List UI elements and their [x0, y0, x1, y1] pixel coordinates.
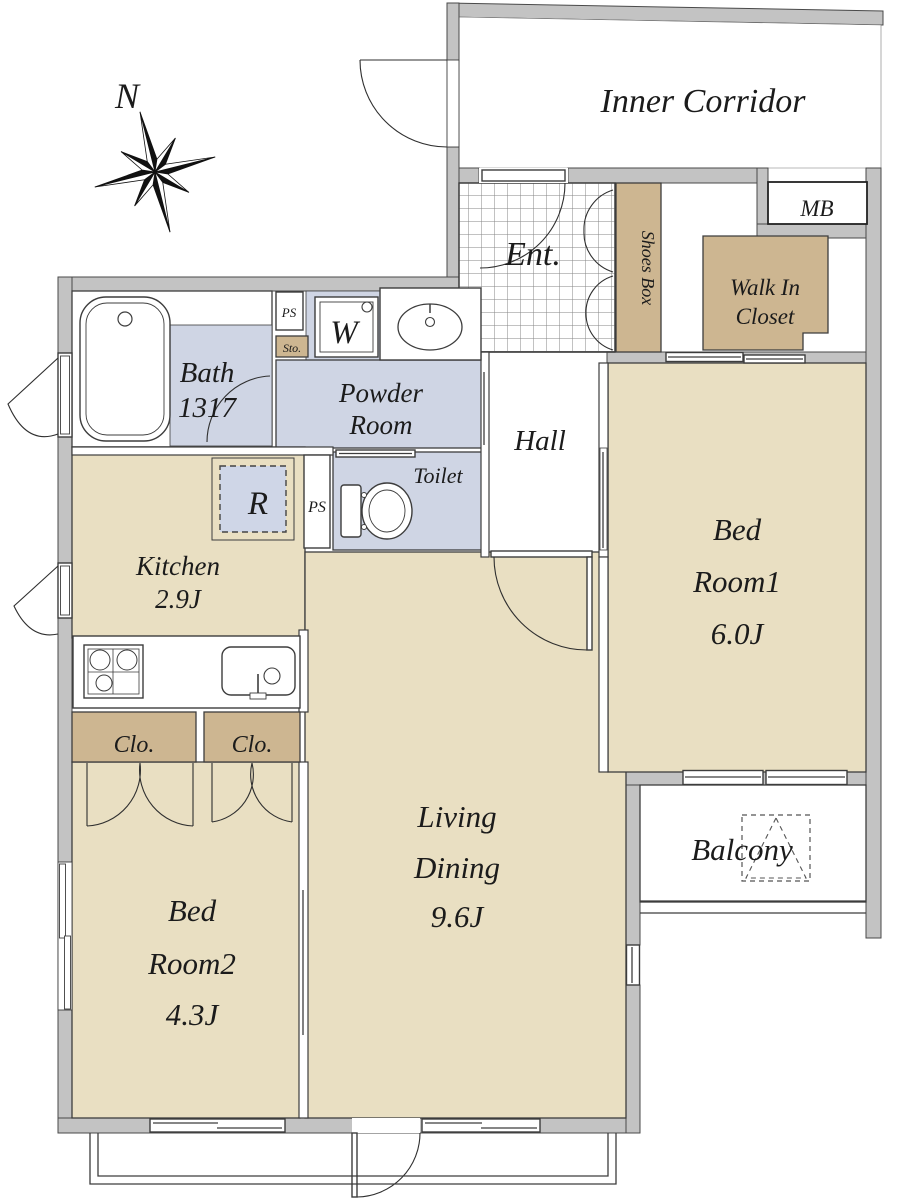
closet-left-label: Clo. [114, 732, 155, 758]
vanity-drain [426, 318, 435, 327]
living-south-door-leaf [352, 1133, 357, 1197]
kitchen-label-2: 2.9J [155, 584, 203, 614]
living-bedroom1-wall [599, 557, 608, 772]
bath-label-2: 1317 [178, 392, 238, 424]
ps-lower-label: PS [307, 499, 326, 516]
compass-rose-icon [80, 97, 230, 247]
compass-north-label: N [114, 76, 141, 116]
powder-label-1: Powder [338, 378, 423, 408]
living-east-window [627, 945, 640, 985]
entrance-label: Ent. [504, 236, 561, 273]
powder-hall-wall [481, 352, 489, 557]
bedroom2-label-1: Bed [168, 893, 217, 928]
wic-label-1: Walk In [730, 275, 800, 300]
ps-upper-label: PS [281, 305, 297, 320]
bath-label-1: Bath [180, 357, 235, 389]
living-label-1: Living [416, 799, 496, 834]
living-right-wall-lower [626, 985, 640, 1133]
bedroom2-west-window-sash1 [60, 864, 66, 938]
hall-living-door-leaf [587, 557, 592, 650]
bedroom2-label-3: 4.3J [166, 997, 220, 1032]
floor-plan-canvas: N Inner Corridor Ent. MB Shoes Box Walk … [0, 0, 901, 1200]
washer-label: W [330, 315, 360, 351]
stove-burner-2 [117, 650, 137, 670]
toilet-tank [341, 485, 361, 537]
left-window-1-casement [8, 358, 58, 437]
refrigerator-label: R [247, 486, 268, 522]
bedroom2-floor [72, 762, 300, 1118]
bedroom2-west-window-sash2 [65, 936, 71, 1009]
corridor-door-swing [360, 60, 447, 147]
living-label-2: Dining [413, 850, 500, 885]
bedroom1-label-3: 6.0J [711, 616, 765, 651]
closet-right-label: Clo. [232, 732, 273, 758]
living-south-door-opening [352, 1118, 420, 1133]
washer-drain [362, 302, 372, 312]
kitchen-label-1: Kitchen [135, 551, 220, 581]
bath-kitchen-wall [72, 447, 333, 455]
corridor-door-frame [447, 60, 459, 147]
stove-burner-1 [90, 650, 110, 670]
bedroom2-label-2: Room2 [147, 946, 236, 981]
bedroom1-label-2: Room1 [692, 564, 781, 599]
corridor-bottom-wall-b [568, 168, 757, 183]
wic-label-2: Closet [736, 304, 795, 329]
living-south-window [422, 1119, 540, 1132]
bedroom2-south-window [150, 1119, 285, 1132]
floor-plan: N Inner Corridor Ent. MB Shoes Box Walk … [0, 0, 901, 1200]
toilet-label: Toilet [413, 463, 463, 488]
meter-box-label: MB [799, 196, 833, 221]
balcony-label: Balcony [691, 832, 793, 867]
storage-label: Sto. [283, 341, 301, 355]
kitchen-faucet-base [250, 693, 266, 699]
kitchen-sink-drain [264, 668, 280, 684]
right-wall [866, 168, 881, 938]
corridor-label: Inner Corridor [600, 83, 807, 120]
living-south-door-swing [357, 1133, 420, 1197]
toilet-knob-bottom [362, 525, 367, 530]
balcony-left-wall [626, 772, 640, 945]
hall-living-door-frame [491, 551, 592, 557]
hall-label: Hall [513, 425, 566, 457]
bathtub-drain [118, 312, 132, 326]
living-dining-floor [305, 552, 626, 1118]
entrance-left-wall [447, 147, 459, 291]
living-label-3: 9.6J [431, 899, 485, 934]
entrance-door-leaf [482, 170, 565, 181]
stove-burner-3 [96, 675, 112, 691]
corridor-bottom-wall-a [459, 168, 479, 183]
bottom-wall [58, 1118, 640, 1133]
bedroom1-label-1: Bed [713, 512, 762, 547]
toilet-knob-top [362, 493, 367, 498]
powder-label-2: Room [349, 410, 413, 440]
left-window-2-casement [14, 566, 58, 635]
toilet-bowl [362, 483, 412, 539]
corridor-left-wall-upper [447, 3, 459, 61]
shoes-box-label: Shoes Box [638, 231, 658, 305]
